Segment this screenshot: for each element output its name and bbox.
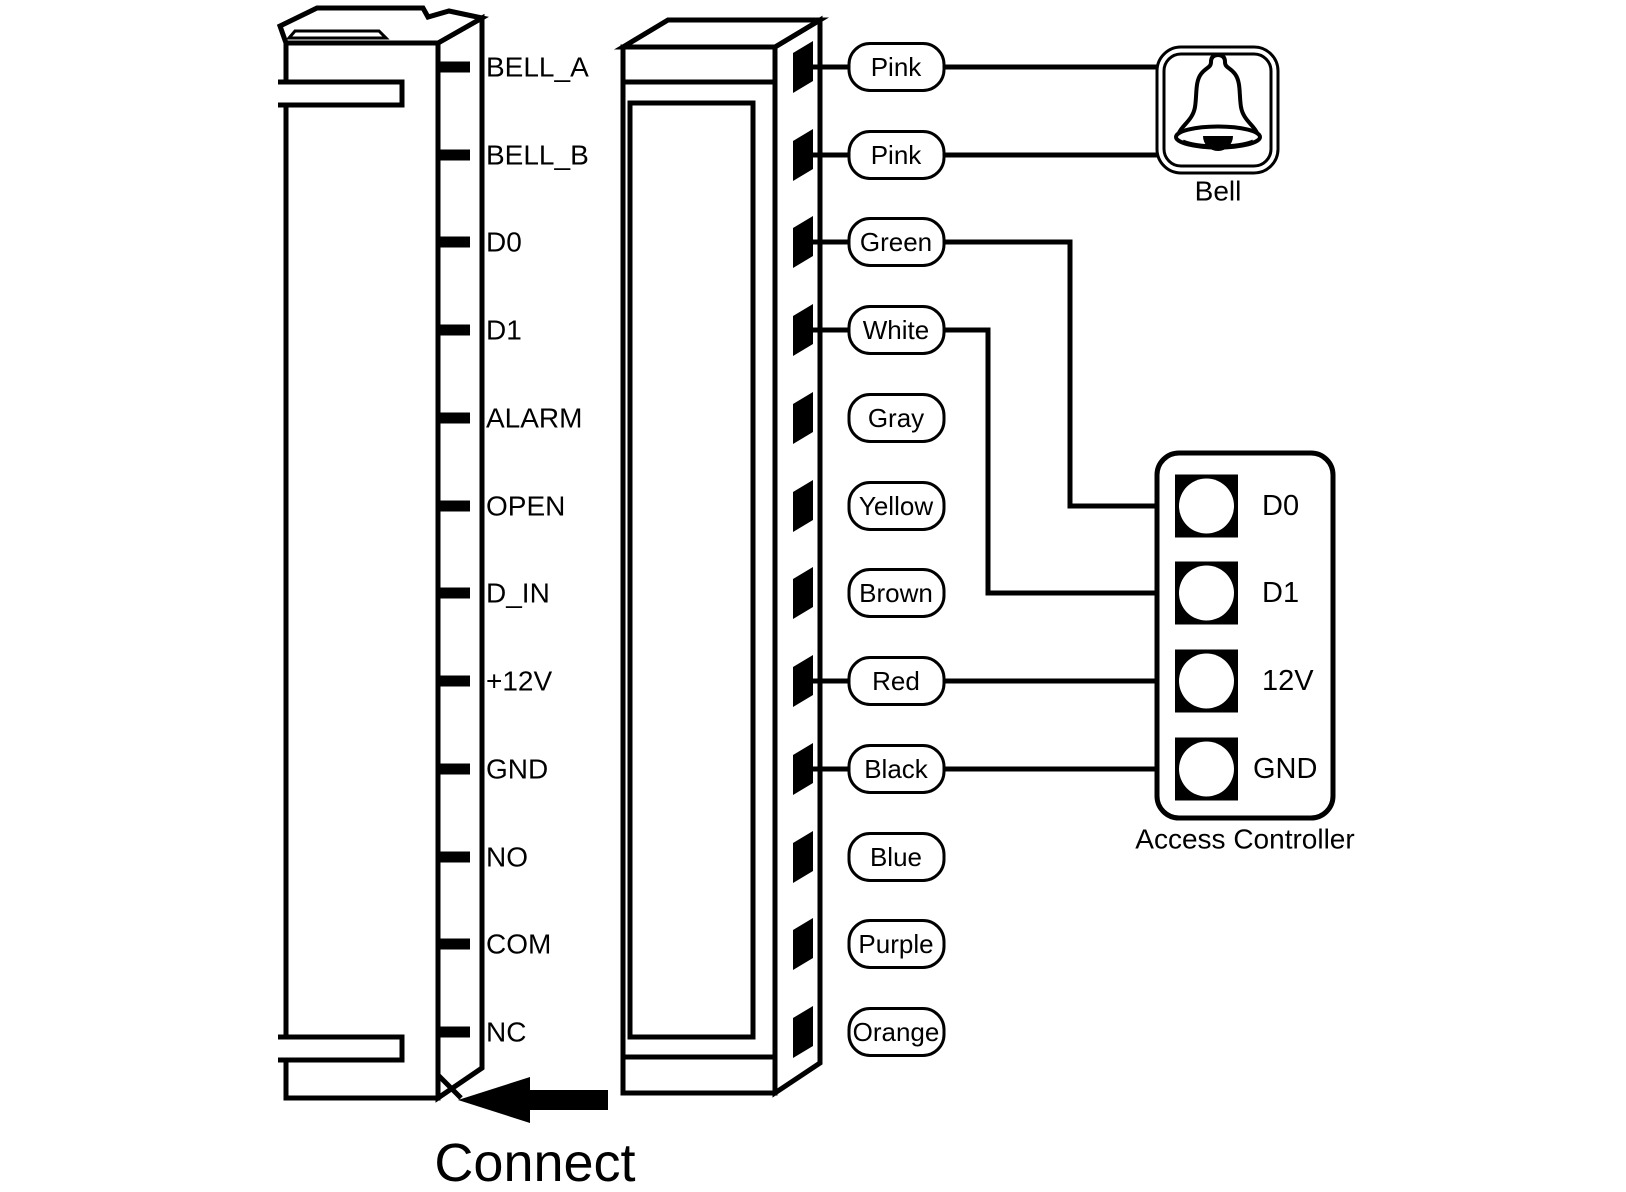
pin-label: BELL_B (486, 140, 589, 171)
pin-tick (438, 588, 470, 599)
pin-tick (438, 325, 470, 336)
pin-label: NC (486, 1017, 526, 1048)
device-block-top-notch (278, 82, 402, 105)
connect-arrow-icon (458, 1077, 608, 1123)
pin-label: D1 (486, 315, 522, 346)
terminal-label: D0 (1262, 490, 1299, 522)
pin-label: ALARM (486, 403, 582, 434)
pin-tick (438, 939, 470, 950)
connect-indicator: Connect (434, 1077, 635, 1192)
access-controller-title: Access Controller (1135, 824, 1354, 855)
pin-tick (438, 852, 470, 863)
pin-label: OPEN (486, 491, 565, 522)
pin-label: D_IN (486, 578, 550, 609)
pin-label: BELL_A (486, 52, 589, 83)
wire-pill-label: Gray (868, 403, 924, 433)
terminal-hole (1179, 654, 1234, 709)
terminal-hole (1179, 479, 1234, 534)
bell-assembly: Bell (1157, 47, 1278, 207)
terminal-hole (1179, 742, 1234, 797)
pin-tick (438, 237, 470, 248)
wire-pill-label: Yellow (859, 491, 933, 521)
wire-pill-label: Purple (858, 929, 933, 959)
wire-pill-label: Green (860, 227, 932, 257)
terminal-label: GND (1253, 753, 1317, 785)
bell-label: Bell (1195, 176, 1242, 207)
device-block-front-face (286, 43, 438, 1098)
pin-tick (438, 1027, 470, 1038)
pin-label: D0 (486, 227, 522, 258)
pin-tick (438, 501, 470, 512)
wire-pill-label: Orange (853, 1017, 940, 1047)
terminal-label: D1 (1262, 577, 1299, 609)
pin-tick (438, 764, 470, 775)
terminal-label: 12V (1262, 665, 1314, 697)
access-controller: D0 D1 12V GND Access Controller (1135, 453, 1354, 855)
device-block-top-slot-strip (289, 31, 386, 38)
wiring-diagram: BELL_A BELL_B D0 D1 ALARM OPEN D_IN +12V… (0, 0, 1626, 1192)
terminal-hole (1179, 566, 1234, 621)
pin-tick (438, 676, 470, 687)
pin-label: GND (486, 754, 548, 785)
pin-label: +12V (486, 666, 552, 697)
wire-pill-label: Black (864, 754, 929, 784)
pin-tick (438, 62, 470, 73)
device-block-bottom-notch (278, 1037, 402, 1060)
pin-label: COM (486, 929, 551, 960)
wire-pill-label: Red (872, 666, 920, 696)
diagram-svg: BELL_A BELL_B D0 D1 ALARM OPEN D_IN +12V… (0, 0, 1626, 1192)
wire-pill-label: Pink (871, 52, 923, 82)
pin-tick (438, 150, 470, 161)
wire-pill-label: Brown (859, 578, 933, 608)
device-pin-labels: BELL_A BELL_B D0 D1 ALARM OPEN D_IN +12V… (486, 52, 589, 1048)
wire-white-to-d1 (944, 330, 1159, 593)
wire-green-to-d0 (944, 242, 1159, 506)
connect-label: Connect (434, 1133, 635, 1192)
device-connector-block (278, 8, 482, 1098)
pin-label: NO (486, 842, 528, 873)
wire-color-pills: Pink Pink Green White Gray Yellow Brown … (849, 44, 944, 1056)
wire-pill-label: White (863, 315, 929, 345)
wire-pill-label: Blue (870, 842, 922, 872)
wire-pill-label: Pink (871, 140, 923, 170)
pin-tick (438, 413, 470, 424)
cable-connector-block (623, 20, 820, 1093)
device-block-side-face (438, 18, 482, 1098)
